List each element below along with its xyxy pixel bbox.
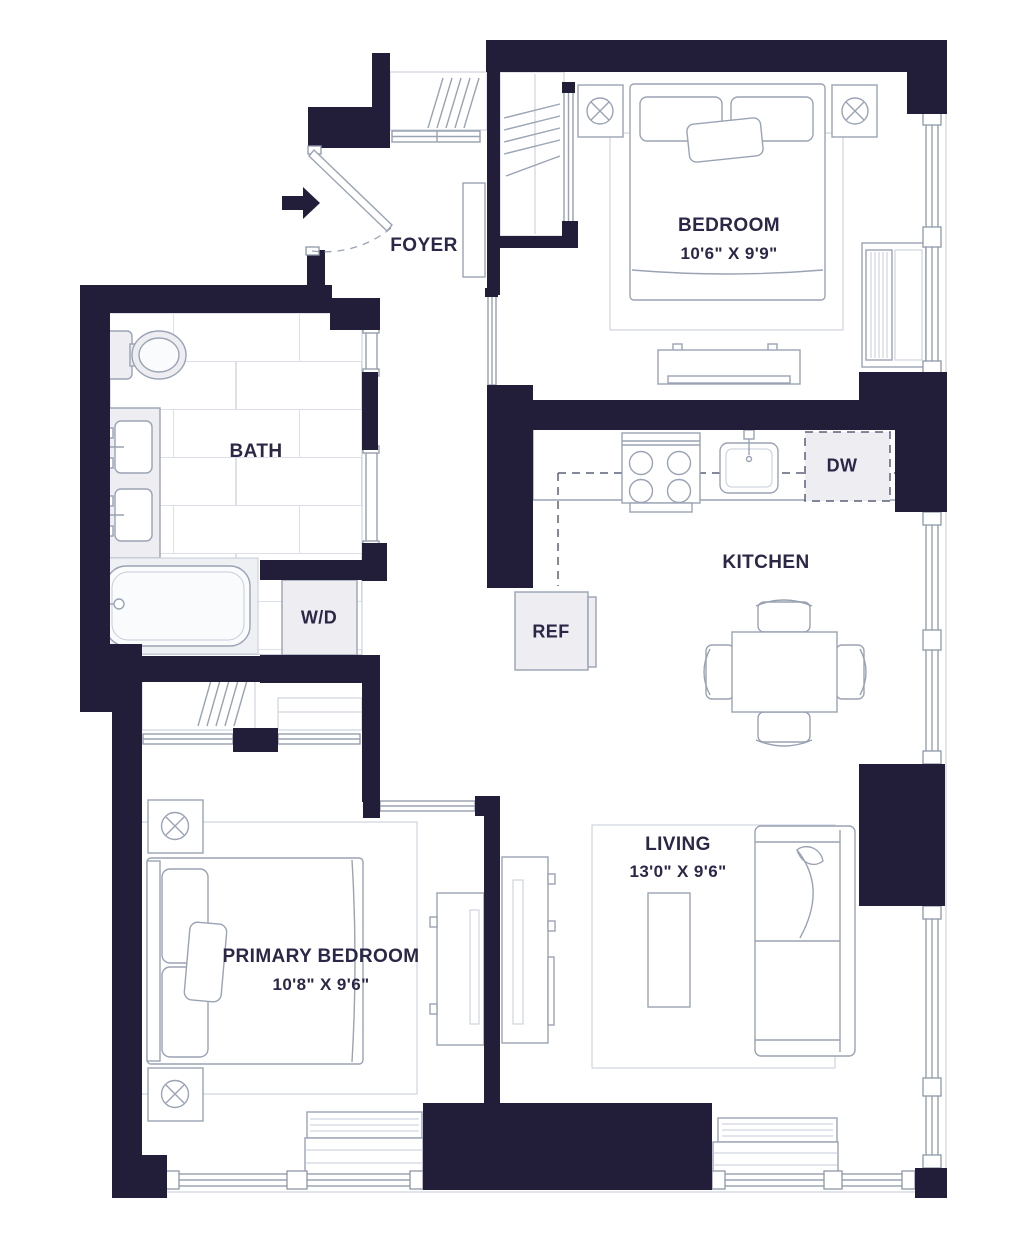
window-kitchen-east: [923, 512, 941, 764]
vanity-sinks: [106, 408, 160, 558]
window-living-east: [923, 906, 941, 1168]
primary-closet-a-door-track: [143, 734, 233, 744]
washer-dryer-label: W/D: [301, 608, 337, 629]
nightstand-primary-bottom: [148, 1068, 203, 1121]
foyer-label: FOYER: [390, 235, 457, 257]
foyer-closet-door-track: [392, 131, 480, 142]
entry-arrow-icon: [282, 187, 320, 219]
lamp-icon: [587, 98, 613, 124]
primary-bedroom-dimensions: 10'8" X 9'6": [272, 975, 369, 995]
primary-dresser: [430, 893, 484, 1045]
floor-plan: FOYER BEDROOM 10'6" X 9'9" BATH KITCHEN …: [0, 0, 1034, 1234]
toilet: [104, 331, 186, 379]
bath-label: BATH: [230, 441, 283, 463]
foyer-closet: [390, 72, 487, 142]
entry-door-leaf: [309, 150, 392, 231]
entry-door: [282, 146, 392, 255]
window-primary-south: [166, 1171, 423, 1189]
foyer-open-door-leaf: [463, 183, 485, 277]
bedroom-label: BEDROOM: [678, 215, 780, 237]
nightstand-bedroom-left: [578, 85, 623, 137]
dining-table-set: [704, 600, 866, 746]
coffee-table: [648, 893, 690, 1007]
entry-door-swing-arc: [312, 228, 391, 252]
sofa: [755, 826, 855, 1056]
window-bedroom-east: [923, 112, 941, 374]
bedroom-bench: [658, 344, 800, 384]
lamp-icon: [842, 98, 868, 124]
living-ac-unit: [713, 1118, 838, 1177]
stove: [622, 433, 700, 512]
lamp-icon: [162, 813, 189, 840]
bedroom-dimensions: 10'6" X 9'9": [680, 244, 777, 264]
bedroom-closet: [500, 72, 573, 236]
kitchen-sink: [720, 430, 778, 493]
primary-bedroom-label: PRIMARY BEDROOM: [222, 946, 419, 968]
nightstand-primary-top: [148, 800, 203, 853]
living-dimensions: 13'0" X 9'6": [629, 862, 726, 882]
primary-closet-b-door-track: [278, 734, 360, 744]
nightstand-bedroom-right: [832, 85, 877, 137]
bedroom-ac-unit: [862, 243, 926, 367]
primary-closet-b: [278, 698, 362, 744]
kitchen-label: KITCHEN: [722, 552, 809, 574]
lamp-icon: [162, 1081, 189, 1108]
bath-lower-door-frame: [363, 446, 379, 548]
living-label: LIVING: [645, 834, 711, 856]
window-living-south: [712, 1171, 915, 1189]
dishwasher-label: DW: [827, 456, 858, 477]
bedroom-bed: [630, 84, 825, 300]
bedroom-doorway-frame: [488, 295, 496, 385]
bath-door-frame: [363, 326, 379, 376]
floor-plan-svg: [0, 0, 1034, 1234]
refrigerator-label: REF: [532, 622, 569, 643]
bathtub: [95, 558, 258, 654]
primary-entry-opening: [380, 801, 475, 811]
tv-console: [502, 857, 555, 1043]
primary-ac-unit: [305, 1112, 423, 1177]
bedroom-closet-door-track: [564, 92, 573, 222]
